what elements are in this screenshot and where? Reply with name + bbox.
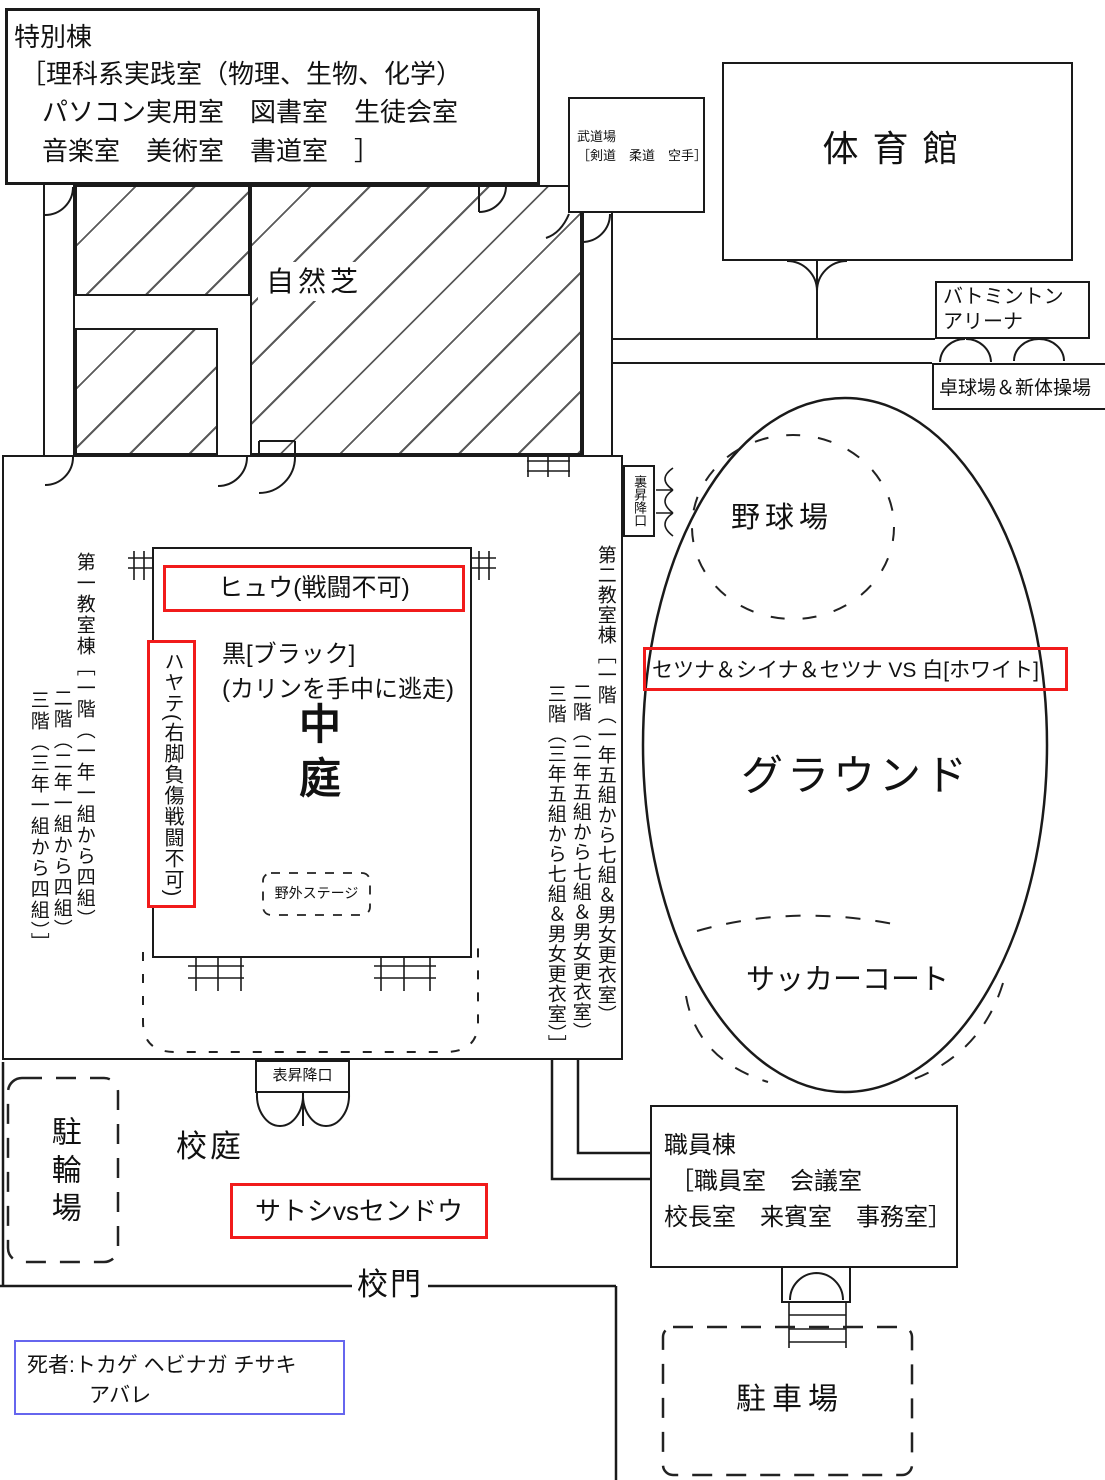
corridor-budokan — [582, 213, 613, 457]
staff-door-icon — [782, 1268, 850, 1302]
bike-parking-label: 駐輪場 — [30, 1108, 96, 1238]
walkway-door-icon — [940, 339, 1064, 362]
budokan-rooms: ［剣道 柔道 空手］ — [577, 148, 703, 164]
lawn-label: 自然芝 — [258, 262, 370, 301]
battle-hayate-box: ハヤテ(右脚負傷戦闘不可) — [147, 640, 196, 908]
schoolyard-label: 校庭 — [176, 1128, 244, 1167]
corridor-left — [43, 185, 75, 457]
classroom1-col2: 二階（二年一組から四組） — [49, 688, 73, 940]
staff-ladder-icon — [789, 1302, 846, 1348]
classroom1-col3: 三階（三年一組から四組）］ — [26, 690, 50, 954]
staff-rooms-1: ［職員室 会議室 — [670, 1167, 956, 1197]
special-building-rooms-2: パソコン実用室 図書室 生徒会室 — [42, 96, 531, 129]
lawn-hatch-lower-left — [75, 328, 218, 455]
baseball-label: 野球場 — [731, 500, 833, 536]
back-entrance-label: 裏昇降口 — [631, 475, 647, 527]
black-note-line2: (カリンを手中に逃走) — [222, 675, 454, 705]
table-tennis-hall: 卓球場＆新体操場 — [932, 363, 1105, 410]
battle-satoshi-label: サトシvsセンドウ — [255, 1195, 463, 1228]
walkway-lines — [613, 261, 935, 363]
gym-door-icon — [787, 261, 847, 291]
front-entrance-door-icon — [257, 1093, 349, 1126]
staff-connector — [552, 1060, 650, 1179]
gymnasium: 体育館 — [722, 62, 1073, 261]
car-parking-label: 駐車場 — [700, 1380, 880, 1420]
budokan-name: 武道場 — [577, 129, 703, 145]
deaths-line2: アバレ — [89, 1383, 343, 1409]
gymnasium-name: 体育館 — [724, 126, 1071, 171]
classroom2-col3: 三階（三年五組から七組＆男女更衣室）］ — [543, 684, 567, 1055]
gate-label: 校門 — [352, 1264, 428, 1306]
classroom1-col1: 第一教室棟［一階（一年一組から四組） — [72, 552, 96, 930]
back-entrance: 裏昇降口 — [623, 465, 655, 537]
badminton-line2: アリーナ — [943, 310, 1088, 335]
special-building-rooms-1: ［理科系実践室（物理、生物、化学） — [20, 58, 531, 91]
back-entrance-door-icon — [656, 468, 673, 536]
battle-hyuu-box: ヒュウ(戦闘不可) — [163, 565, 465, 612]
stage-label: 野外ステージ — [263, 873, 370, 915]
staff-building: 職員棟 ［職員室 会議室 校長室 来賓室 事務室］ — [650, 1105, 958, 1268]
battle-setsuna-box: セツナ＆シイナ＆セツナ VS 白[ホワイト] — [643, 647, 1068, 691]
table-tennis-name: 卓球場＆新体操場 — [939, 377, 1105, 401]
lawn-hatch-upper-left — [75, 185, 250, 296]
battle-setsuna-label: セツナ＆シイナ＆セツナ VS 白[ホワイト] — [652, 658, 1065, 684]
deaths-line1: 死者:トカゲ ヘビナガ チサキ — [27, 1353, 343, 1379]
special-building-rooms-3: 音楽室 美術室 書道室 ］ — [42, 135, 531, 168]
badminton-arena: バトミントン アリーナ — [935, 281, 1090, 339]
classroom2-col2: 二階（二年五組から七組＆男女更衣室） — [568, 682, 592, 1042]
staff-rooms-2: 校長室 来賓室 事務室］ — [664, 1203, 956, 1233]
battle-hayate-label: ハヤテ(右脚負傷戦闘不可) — [159, 651, 184, 897]
ground-label: グラウンド — [741, 750, 971, 803]
soccer-label: サッカーコート — [746, 962, 949, 998]
school-map: 特別棟 ［理科系実践室（物理、生物、化学） パソコン実用室 図書室 生徒会室 音… — [0, 0, 1105, 1480]
staff-building-name: 職員棟 — [664, 1131, 956, 1161]
black-note-line1: 黒[ブラック] — [222, 640, 355, 670]
soccer-dashed-arcs — [686, 916, 1003, 1083]
front-entrance: 表昇降口 — [255, 1060, 350, 1093]
classroom2-col1: 第二教室棟［一階（一年五組から七組＆男女更衣室） — [593, 545, 617, 1025]
courtyard-label: 中庭 — [290, 702, 343, 810]
front-entrance-label: 表昇降口 — [272, 1067, 332, 1086]
deaths-box: 死者:トカゲ ヘビナガ チサキ アバレ — [14, 1340, 345, 1415]
special-building: 特別棟 ［理科系実践室（物理、生物、化学） パソコン実用室 図書室 生徒会室 音… — [5, 8, 540, 185]
battle-hyuu-label: ヒュウ(戦闘不可) — [218, 573, 410, 604]
special-building-name: 特別棟 — [14, 21, 531, 54]
battle-satoshi-box: サトシvsセンドウ — [230, 1183, 488, 1239]
badminton-line1: バトミントン — [943, 285, 1088, 310]
lawn-hatch-right — [250, 185, 582, 455]
budokan: 武道場 ［剣道 柔道 空手］ — [568, 97, 705, 213]
